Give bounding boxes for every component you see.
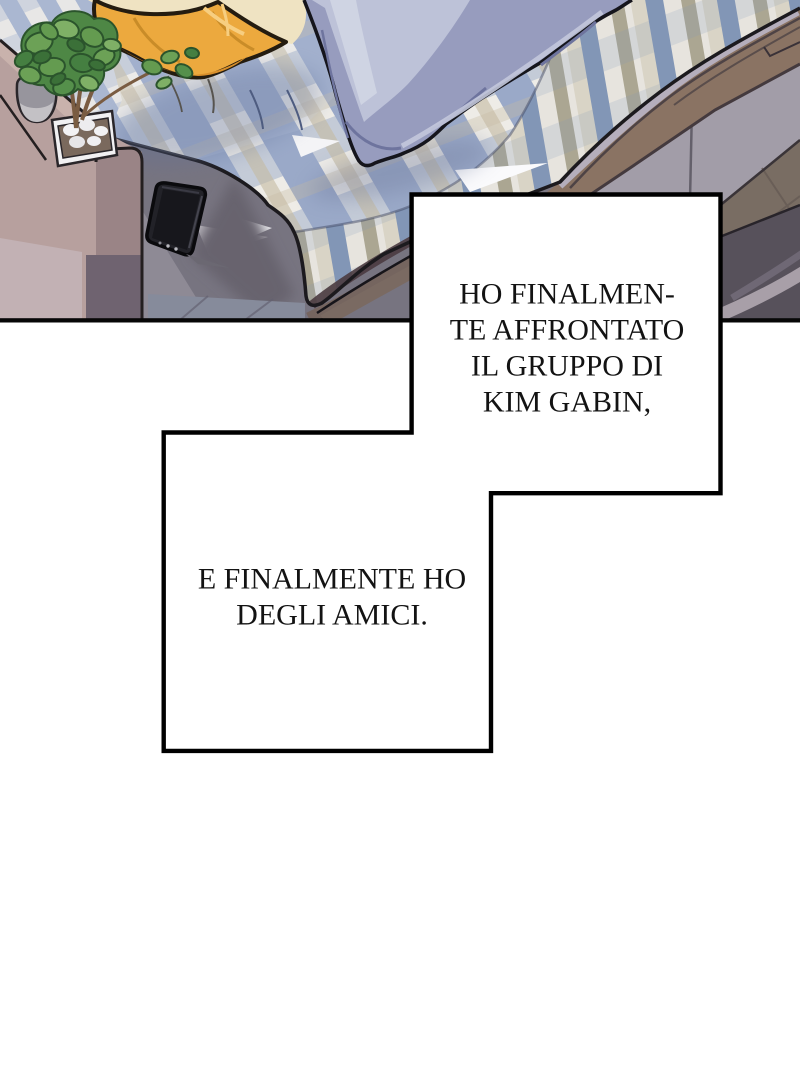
svg-text:DEGLI AMICI.: DEGLI AMICI. xyxy=(236,599,428,632)
svg-text:HO FINALMEN-: HO FINALMEN- xyxy=(459,278,675,311)
svg-text:TE AFFRONTATO: TE AFFRONTATO xyxy=(450,314,685,347)
svg-text:E FINALMENTE HO: E FINALMENTE HO xyxy=(198,563,466,596)
svg-text:KIM GABIN,: KIM GABIN, xyxy=(483,386,651,419)
svg-text:IL GRUPPO DI: IL GRUPPO DI xyxy=(471,350,663,383)
